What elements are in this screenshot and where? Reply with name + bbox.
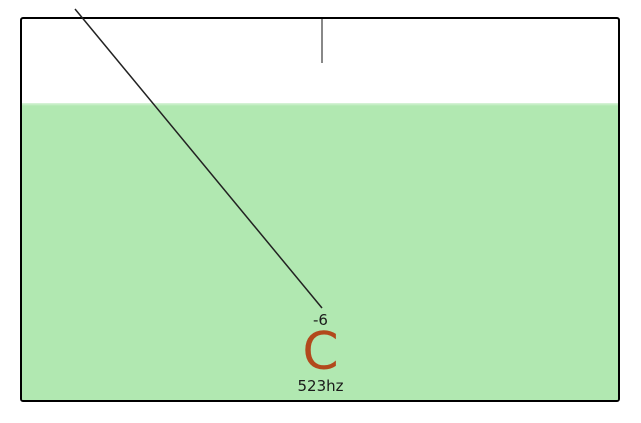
frequency-value: 523hz: [0, 378, 641, 395]
tuner-app: -6 C 523hz: [0, 0, 641, 423]
center-pitch-tick: [321, 19, 323, 63]
detected-note-name: C: [0, 326, 641, 378]
